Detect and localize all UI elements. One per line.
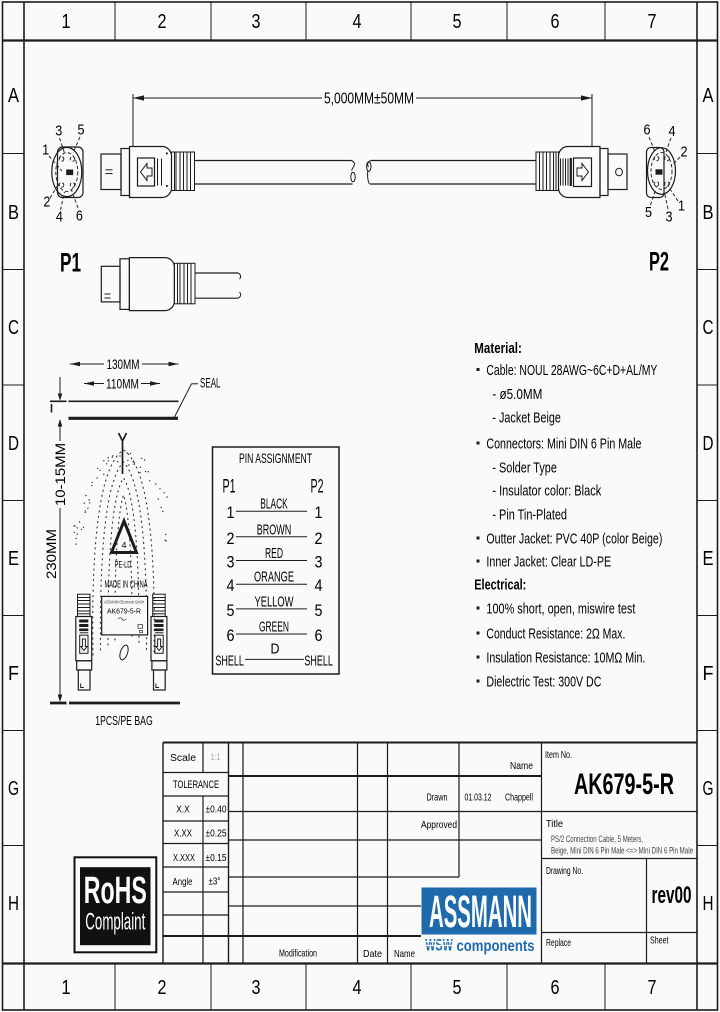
svg-text:Date: Date bbox=[363, 948, 382, 960]
svg-text:1: 1 bbox=[678, 198, 685, 215]
svg-text:±0.15: ±0.15 bbox=[206, 853, 227, 864]
svg-text:ORANGE: ORANGE bbox=[254, 569, 294, 586]
svg-text:Name: Name bbox=[510, 761, 533, 772]
svg-text:C: C bbox=[703, 317, 714, 339]
svg-text:1: 1 bbox=[62, 11, 71, 33]
svg-text:1PCS/PE BAG: 1PCS/PE BAG bbox=[95, 713, 153, 728]
svg-text:3: 3 bbox=[315, 553, 323, 572]
svg-text:230MM: 230MM bbox=[43, 529, 59, 579]
svg-text:Insulation Resistance: 10MΩ Mi: Insulation Resistance: 10MΩ Min. bbox=[486, 650, 645, 667]
svg-text:6: 6 bbox=[76, 208, 83, 225]
svg-text:01.03.12: 01.03.12 bbox=[465, 793, 492, 804]
svg-text:- ø5.0MM: - ø5.0MM bbox=[492, 386, 542, 403]
svg-text:6: 6 bbox=[551, 11, 560, 33]
svg-text:D: D bbox=[703, 433, 714, 455]
svg-text:3: 3 bbox=[227, 553, 235, 572]
svg-text:Material:: Material: bbox=[474, 340, 522, 357]
svg-text:Drawn: Drawn bbox=[427, 793, 448, 804]
svg-text:X.X: X.X bbox=[176, 805, 190, 816]
svg-text:AK679-5-R: AK679-5-R bbox=[574, 768, 674, 801]
svg-text:Item No.: Item No. bbox=[545, 750, 572, 761]
svg-text:3: 3 bbox=[55, 123, 62, 140]
svg-text:E: E bbox=[8, 548, 19, 570]
svg-text:BLACK: BLACK bbox=[260, 496, 288, 513]
svg-text:ASSMANN Electronic GmbH: ASSMANN Electronic GmbH bbox=[104, 600, 144, 605]
svg-text:1:1: 1:1 bbox=[211, 752, 221, 762]
svg-text:Name: Name bbox=[394, 948, 415, 960]
svg-text:PS/2 Connection Cable, 5 Meter: PS/2 Connection Cable, 5 Meters, bbox=[551, 834, 643, 845]
svg-text:E: E bbox=[703, 548, 714, 570]
svg-text:G: G bbox=[703, 778, 714, 800]
svg-text:GREEN: GREEN bbox=[259, 619, 289, 636]
svg-text:SHELL: SHELL bbox=[215, 653, 244, 670]
svg-text:4: 4 bbox=[315, 576, 323, 595]
svg-text:X.XXX: X.XXX bbox=[173, 853, 195, 864]
svg-text:5: 5 bbox=[227, 601, 235, 620]
svg-text:components: components bbox=[457, 938, 535, 955]
svg-text:Chappell: Chappell bbox=[505, 793, 533, 804]
svg-text:rev00: rev00 bbox=[652, 882, 692, 909]
svg-text:G: G bbox=[8, 778, 19, 800]
svg-text:6: 6 bbox=[551, 977, 560, 999]
svg-text:±3°: ±3° bbox=[209, 877, 221, 888]
svg-text:1: 1 bbox=[42, 142, 49, 159]
svg-text:±0.25: ±0.25 bbox=[206, 829, 227, 840]
svg-text:Approved: Approved bbox=[421, 820, 457, 831]
svg-text:D: D bbox=[271, 641, 280, 658]
svg-text:6: 6 bbox=[644, 122, 651, 139]
svg-text:SEAL: SEAL bbox=[200, 376, 221, 391]
svg-text:Replace: Replace bbox=[546, 938, 571, 949]
svg-text:5: 5 bbox=[645, 204, 652, 221]
svg-text:Dielectric Test: 300V DC: Dielectric Test: 300V DC bbox=[486, 674, 601, 691]
svg-text:P1: P1 bbox=[223, 477, 236, 498]
svg-text:Connectors: Mini DIN 6 Pin Mal: Connectors: Mini DIN 6 Pin Male bbox=[486, 436, 641, 453]
svg-text:B: B bbox=[703, 202, 714, 224]
svg-text:H: H bbox=[8, 893, 19, 915]
svg-text:Title: Title bbox=[546, 818, 563, 830]
svg-text:3: 3 bbox=[252, 11, 261, 33]
svg-text:2: 2 bbox=[158, 977, 167, 999]
svg-text:3: 3 bbox=[252, 977, 261, 999]
svg-text:1: 1 bbox=[62, 977, 71, 999]
svg-text:5: 5 bbox=[315, 601, 323, 620]
svg-text:YELLOW: YELLOW bbox=[255, 593, 295, 610]
svg-text:A: A bbox=[703, 85, 715, 107]
svg-text:5: 5 bbox=[78, 122, 85, 139]
svg-text:Cable: NOUL 28AWG~6C+D+AL/MY: Cable: NOUL 28AWG~6C+D+AL/MY bbox=[486, 362, 657, 379]
svg-text:- Pin Tin-Plated: - Pin Tin-Plated bbox=[492, 507, 567, 524]
svg-text:5: 5 bbox=[453, 977, 462, 999]
svg-text:2: 2 bbox=[315, 529, 323, 548]
svg-text:2: 2 bbox=[227, 529, 235, 548]
svg-text:Modification: Modification bbox=[279, 948, 317, 960]
svg-text:SHELL: SHELL bbox=[304, 653, 333, 670]
svg-text:- Insulator color: Black: - Insulator color: Black bbox=[492, 483, 601, 500]
svg-text:3: 3 bbox=[666, 209, 673, 226]
svg-text:Drawing No.: Drawing No. bbox=[546, 866, 583, 877]
svg-text:PIN ASSIGNMENT: PIN ASSIGNMENT bbox=[239, 450, 312, 466]
svg-text:Inner Jacket: Clear LD-PE: Inner Jacket: Clear LD-PE bbox=[486, 554, 611, 571]
svg-text:P1: P1 bbox=[60, 248, 81, 278]
svg-text:D: D bbox=[8, 433, 19, 455]
svg-text:±0.40: ±0.40 bbox=[206, 805, 227, 816]
svg-text:6: 6 bbox=[227, 626, 235, 645]
svg-text:- Jacket Beige: - Jacket Beige bbox=[492, 410, 561, 427]
svg-text:- Solder Type: - Solder Type bbox=[492, 460, 557, 477]
svg-text:6: 6 bbox=[315, 626, 323, 645]
svg-text:4: 4 bbox=[122, 541, 128, 550]
svg-text:PE-LD: PE-LD bbox=[115, 560, 132, 571]
svg-text:A: A bbox=[8, 85, 20, 107]
svg-text:RoHS: RoHS bbox=[84, 870, 147, 912]
svg-text:10-15MM: 10-15MM bbox=[53, 443, 68, 506]
svg-text:AK679-5-R: AK679-5-R bbox=[107, 607, 142, 616]
svg-text:C: C bbox=[8, 317, 19, 339]
svg-text:TOLERANCE: TOLERANCE bbox=[173, 779, 219, 791]
svg-text:H: H bbox=[703, 893, 714, 915]
svg-text:Conduct Resistance: 2Ω Max.: Conduct Resistance: 2Ω Max. bbox=[486, 626, 625, 643]
svg-text:Complaint: Complaint bbox=[85, 909, 145, 936]
svg-text:Beige, Mini DIN 6 Pin Male <=>: Beige, Mini DIN 6 Pin Male <=> Mini DIN … bbox=[551, 846, 693, 857]
svg-text:Outter Jacket: PVC 40P (color: Outter Jacket: PVC 40P (color Beige) bbox=[486, 531, 662, 548]
svg-text:110MM: 110MM bbox=[106, 376, 139, 392]
svg-text:2: 2 bbox=[681, 144, 688, 161]
svg-text:2: 2 bbox=[158, 11, 167, 33]
svg-text:7: 7 bbox=[648, 11, 657, 33]
svg-text:Scale: Scale bbox=[170, 753, 196, 764]
svg-text:2: 2 bbox=[43, 194, 50, 211]
svg-text:X.XX: X.XX bbox=[174, 829, 192, 840]
svg-text:RED: RED bbox=[265, 545, 283, 562]
svg-text:Angle: Angle bbox=[173, 877, 193, 888]
svg-text:4: 4 bbox=[353, 977, 362, 999]
svg-text:P2: P2 bbox=[311, 477, 324, 498]
svg-text:4: 4 bbox=[227, 576, 235, 595]
svg-text:4: 4 bbox=[56, 209, 63, 226]
svg-text:ASSMANN: ASSMANN bbox=[429, 886, 532, 937]
svg-text:Sheet: Sheet bbox=[650, 936, 669, 947]
svg-text:F: F bbox=[703, 663, 714, 685]
svg-text:4: 4 bbox=[353, 11, 362, 33]
svg-text:B: B bbox=[8, 202, 19, 224]
svg-text:BROWN: BROWN bbox=[257, 521, 292, 538]
svg-text:5,000MM±50MM: 5,000MM±50MM bbox=[324, 91, 414, 108]
svg-text:1: 1 bbox=[315, 503, 323, 522]
svg-text:F: F bbox=[8, 663, 19, 685]
svg-text:5: 5 bbox=[453, 11, 462, 33]
svg-text:130MM: 130MM bbox=[107, 356, 140, 372]
svg-text:MADE IN CHINA: MADE IN CHINA bbox=[105, 579, 148, 591]
svg-text:7: 7 bbox=[648, 977, 657, 999]
svg-text:100% short, open, miswire test: 100% short, open, miswire test bbox=[486, 601, 636, 618]
svg-text:P2: P2 bbox=[649, 247, 669, 277]
svg-text:4: 4 bbox=[669, 123, 676, 140]
svg-text:Electrical:: Electrical: bbox=[474, 577, 526, 594]
svg-text:1: 1 bbox=[227, 503, 235, 522]
